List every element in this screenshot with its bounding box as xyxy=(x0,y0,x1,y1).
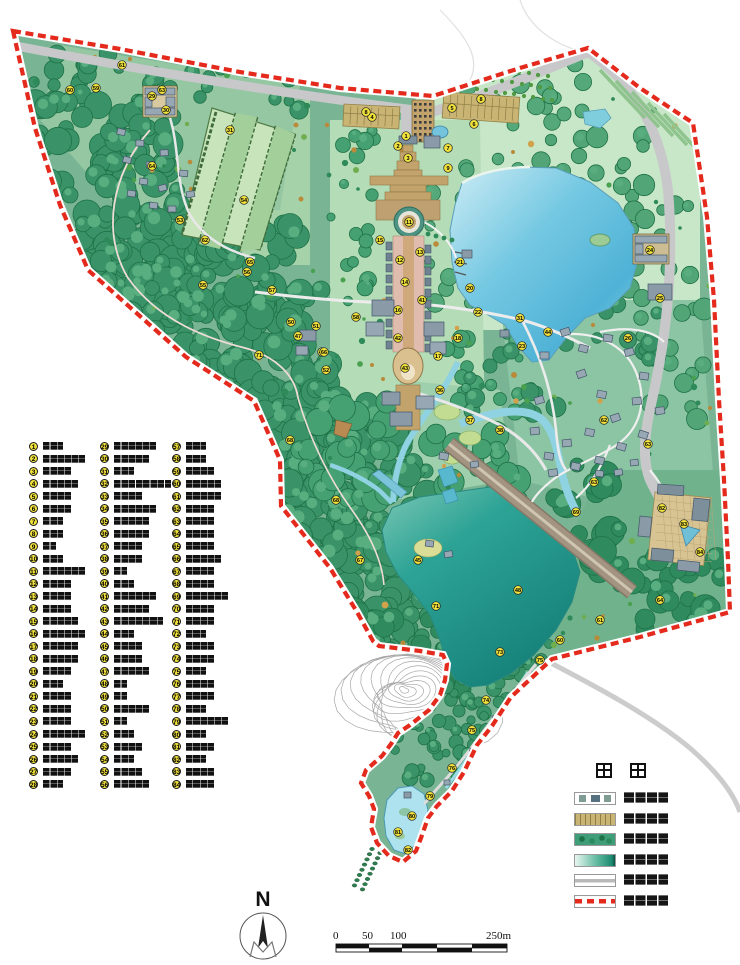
svg-text:3: 3 xyxy=(406,156,409,162)
svg-text:250m: 250m xyxy=(486,930,512,942)
svg-text:61: 61 xyxy=(597,618,603,624)
svg-text:20: 20 xyxy=(467,286,473,292)
svg-text:63: 63 xyxy=(591,480,597,486)
svg-text:21: 21 xyxy=(457,260,463,266)
svg-text:36: 36 xyxy=(437,388,443,394)
svg-text:31: 31 xyxy=(517,316,523,322)
svg-text:8: 8 xyxy=(479,97,482,103)
svg-text:71: 71 xyxy=(256,353,262,359)
svg-text:9: 9 xyxy=(446,166,449,172)
svg-text:22: 22 xyxy=(475,310,481,316)
svg-text:0: 0 xyxy=(333,930,339,942)
svg-text:62: 62 xyxy=(601,418,607,424)
svg-text:69: 69 xyxy=(573,510,579,516)
svg-text:37: 37 xyxy=(467,418,473,424)
svg-text:43: 43 xyxy=(402,366,408,372)
svg-text:48: 48 xyxy=(515,588,521,594)
svg-text:74: 74 xyxy=(483,698,490,704)
svg-text:13: 13 xyxy=(417,250,423,256)
svg-text:68: 68 xyxy=(333,498,339,504)
svg-text:82: 82 xyxy=(405,848,411,854)
svg-text:7: 7 xyxy=(446,146,449,152)
svg-text:5: 5 xyxy=(450,106,453,112)
svg-text:83: 83 xyxy=(681,522,687,528)
svg-text:71: 71 xyxy=(433,604,439,610)
svg-text:29: 29 xyxy=(149,94,155,100)
svg-text:11: 11 xyxy=(406,220,412,226)
svg-text:41: 41 xyxy=(419,298,425,304)
svg-text:66: 66 xyxy=(321,350,327,356)
svg-text:1: 1 xyxy=(404,134,407,140)
svg-text:25: 25 xyxy=(657,296,663,302)
svg-text:42: 42 xyxy=(395,336,401,342)
svg-text:55: 55 xyxy=(200,283,206,289)
svg-text:16: 16 xyxy=(395,308,401,314)
svg-text:38: 38 xyxy=(497,428,503,434)
svg-text:68: 68 xyxy=(287,438,293,444)
svg-text:N: N xyxy=(255,888,270,911)
svg-text:59: 59 xyxy=(93,86,99,92)
svg-text:64: 64 xyxy=(149,164,156,170)
svg-text:47: 47 xyxy=(295,334,301,340)
svg-text:23: 23 xyxy=(519,344,525,350)
svg-text:2: 2 xyxy=(396,144,399,150)
svg-text:52: 52 xyxy=(323,368,329,374)
svg-text:50: 50 xyxy=(362,930,374,942)
svg-text:31: 31 xyxy=(227,128,233,134)
svg-text:6: 6 xyxy=(472,122,475,128)
svg-text:62: 62 xyxy=(202,238,208,244)
svg-text:14: 14 xyxy=(402,280,409,286)
svg-text:18: 18 xyxy=(455,336,461,342)
svg-text:56: 56 xyxy=(244,270,250,276)
svg-text:26: 26 xyxy=(625,336,631,342)
svg-text:80: 80 xyxy=(409,814,415,820)
svg-text:45: 45 xyxy=(415,558,421,564)
svg-text:67: 67 xyxy=(357,558,363,564)
svg-text:84: 84 xyxy=(697,550,704,556)
svg-text:57: 57 xyxy=(269,288,275,294)
svg-text:65: 65 xyxy=(247,260,253,266)
svg-text:63: 63 xyxy=(159,88,165,94)
svg-text:50: 50 xyxy=(288,320,294,326)
svg-text:54: 54 xyxy=(241,198,248,204)
svg-text:75: 75 xyxy=(469,728,475,734)
svg-text:63: 63 xyxy=(645,442,651,448)
svg-text:58: 58 xyxy=(353,315,359,321)
svg-text:24: 24 xyxy=(647,248,654,254)
svg-text:8: 8 xyxy=(364,110,367,116)
svg-text:61: 61 xyxy=(119,63,125,69)
svg-text:75: 75 xyxy=(537,658,543,664)
svg-text:60: 60 xyxy=(557,638,563,644)
svg-text:17: 17 xyxy=(435,354,441,360)
svg-text:44: 44 xyxy=(545,330,552,336)
svg-text:12: 12 xyxy=(397,258,403,264)
svg-text:51: 51 xyxy=(313,324,319,330)
svg-text:30: 30 xyxy=(163,108,169,114)
svg-text:76: 76 xyxy=(449,766,455,772)
svg-text:79: 79 xyxy=(427,794,433,800)
svg-text:15: 15 xyxy=(377,238,383,244)
svg-text:64: 64 xyxy=(657,598,664,604)
svg-text:53: 53 xyxy=(177,218,183,224)
svg-text:73: 73 xyxy=(497,650,503,656)
svg-text:82: 82 xyxy=(659,506,665,512)
svg-text:100: 100 xyxy=(390,930,407,942)
svg-text:60: 60 xyxy=(67,88,73,94)
svg-text:81: 81 xyxy=(395,830,401,836)
